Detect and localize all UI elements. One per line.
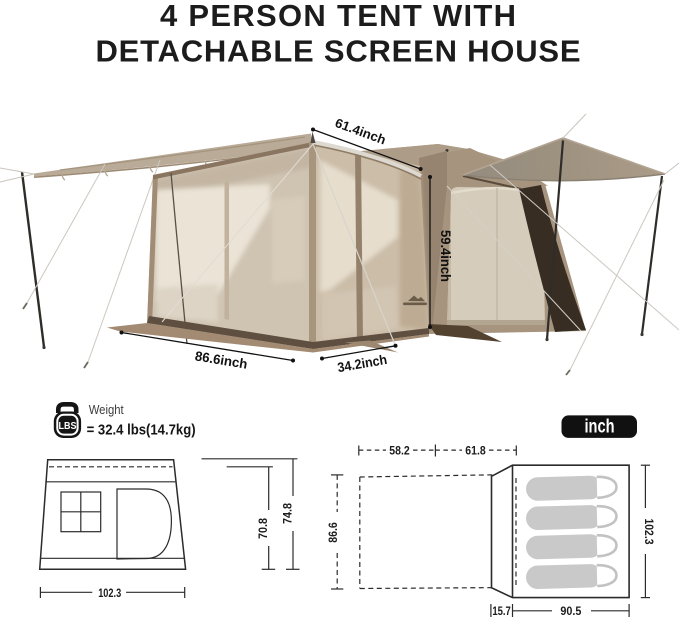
svg-text:86.6: 86.6 (328, 522, 340, 543)
svg-text:61.4inch: 61.4inch (333, 115, 388, 147)
svg-text:102.3: 102.3 (98, 586, 121, 600)
svg-text:34.2inch: 34.2inch (336, 352, 388, 375)
svg-text:LBS: LBS (59, 420, 77, 432)
svg-text:DETACHABLE SCREEN HOUSE: DETACHABLE SCREEN HOUSE (96, 34, 581, 69)
svg-text:= 32.4 lbs(14.7kg): = 32.4 lbs(14.7kg) (87, 423, 196, 439)
svg-text:102.3: 102.3 (642, 519, 656, 545)
svg-text:4 PERSON TENT WITH: 4 PERSON TENT WITH (160, 0, 516, 33)
svg-text:inch: inch (585, 417, 615, 438)
svg-text:15.7: 15.7 (492, 606, 511, 618)
svg-text:74.8: 74.8 (281, 503, 295, 524)
svg-text:61.8: 61.8 (465, 446, 486, 458)
svg-text:Weight: Weight (89, 403, 124, 417)
svg-text:70.8: 70.8 (256, 518, 270, 539)
svg-text:58.2: 58.2 (389, 446, 410, 458)
svg-text:90.5: 90.5 (560, 606, 582, 618)
svg-text:59.4inch: 59.4inch (438, 230, 453, 282)
